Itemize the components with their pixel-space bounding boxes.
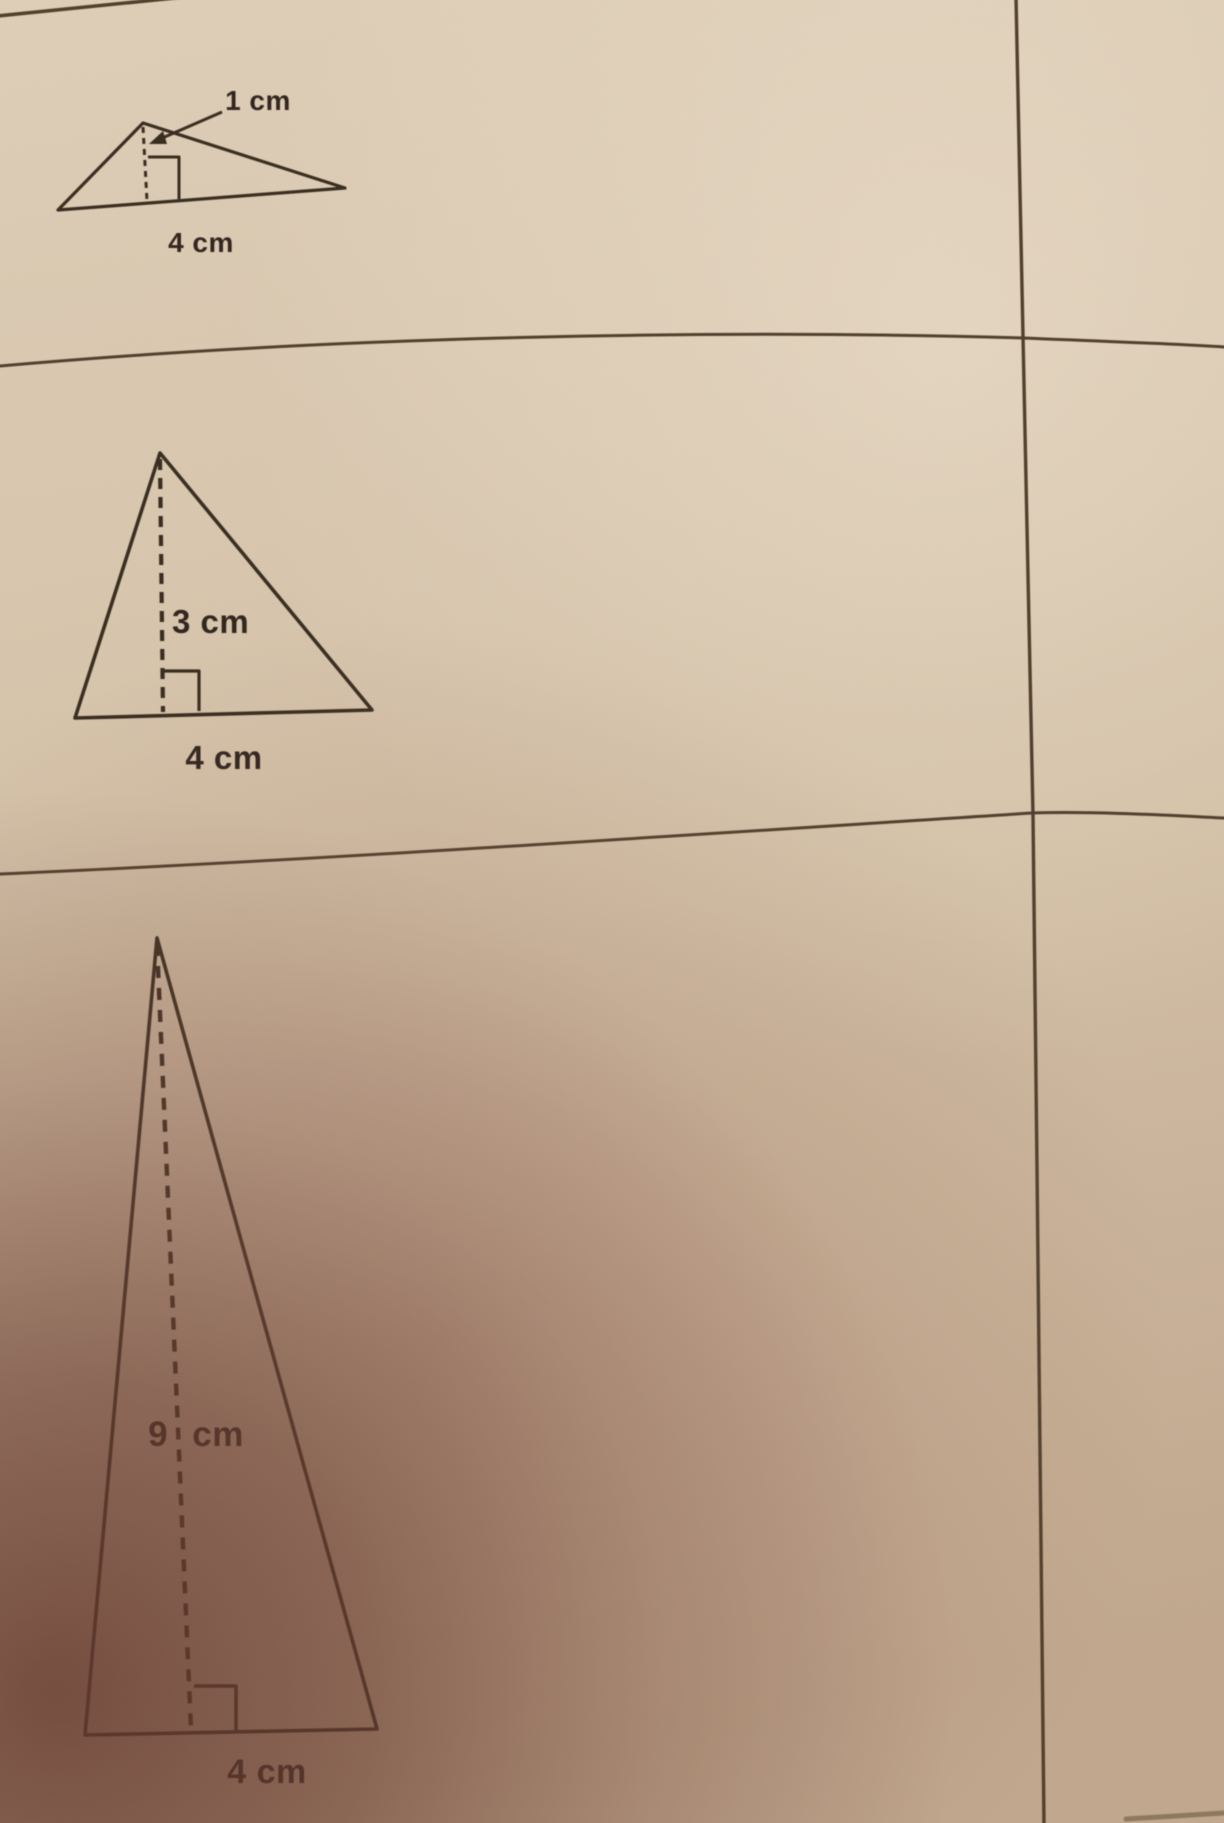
worksheet-canvas: 1 cm 4 cm 3 cm 4 cm 9 cm 4 cm — [0, 0, 1224, 1823]
worksheet-photo: 1 cm 4 cm 3 cm 4 cm 9 cm 4 cm — [0, 0, 1224, 1823]
photo-grain-overlay — [0, 0, 1224, 1823]
